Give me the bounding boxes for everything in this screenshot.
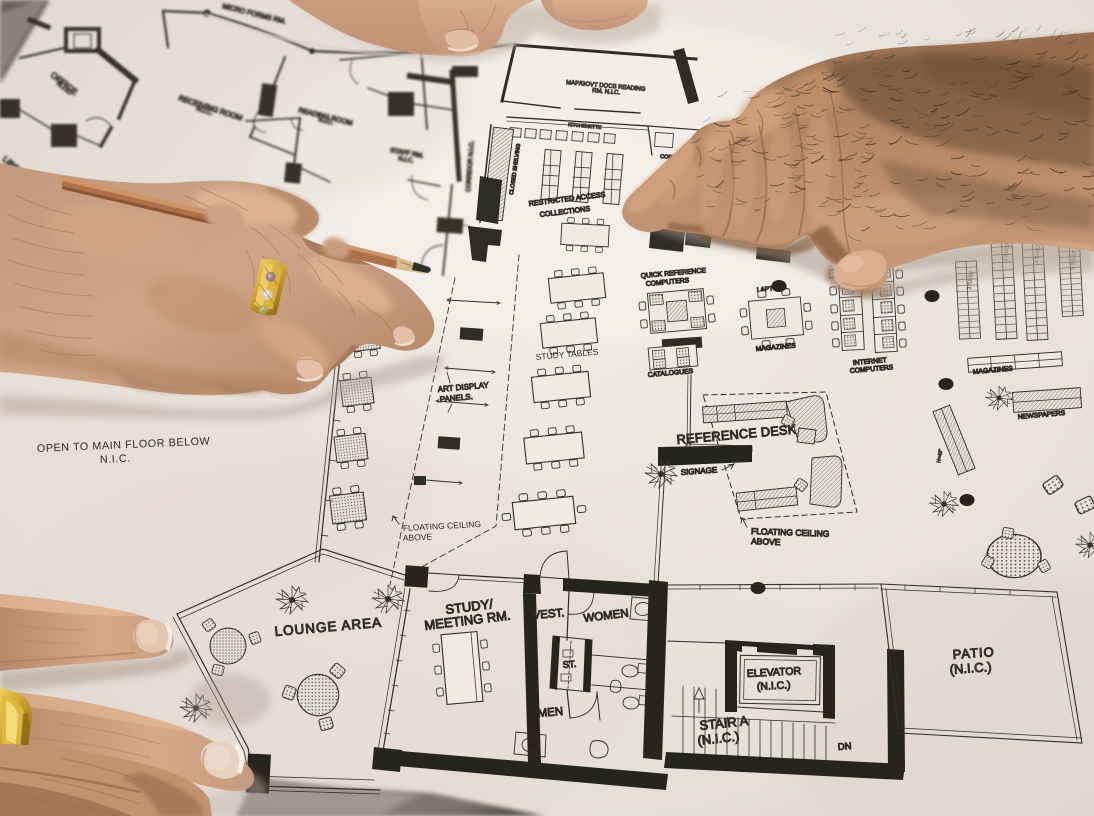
svg-text:DN: DN (837, 741, 852, 753)
svg-text:ABOVE: ABOVE (751, 536, 781, 547)
svg-text:(N.I.C.): (N.I.C.) (757, 679, 791, 693)
svg-text:(N.I.C.): (N.I.C.) (949, 659, 992, 677)
svg-text:MEN: MEN (537, 706, 564, 720)
svg-text:N.I.C.: N.I.C. (100, 453, 131, 466)
svg-text:ST.: ST. (562, 659, 577, 671)
svg-text:ABOVE: ABOVE (403, 531, 433, 543)
